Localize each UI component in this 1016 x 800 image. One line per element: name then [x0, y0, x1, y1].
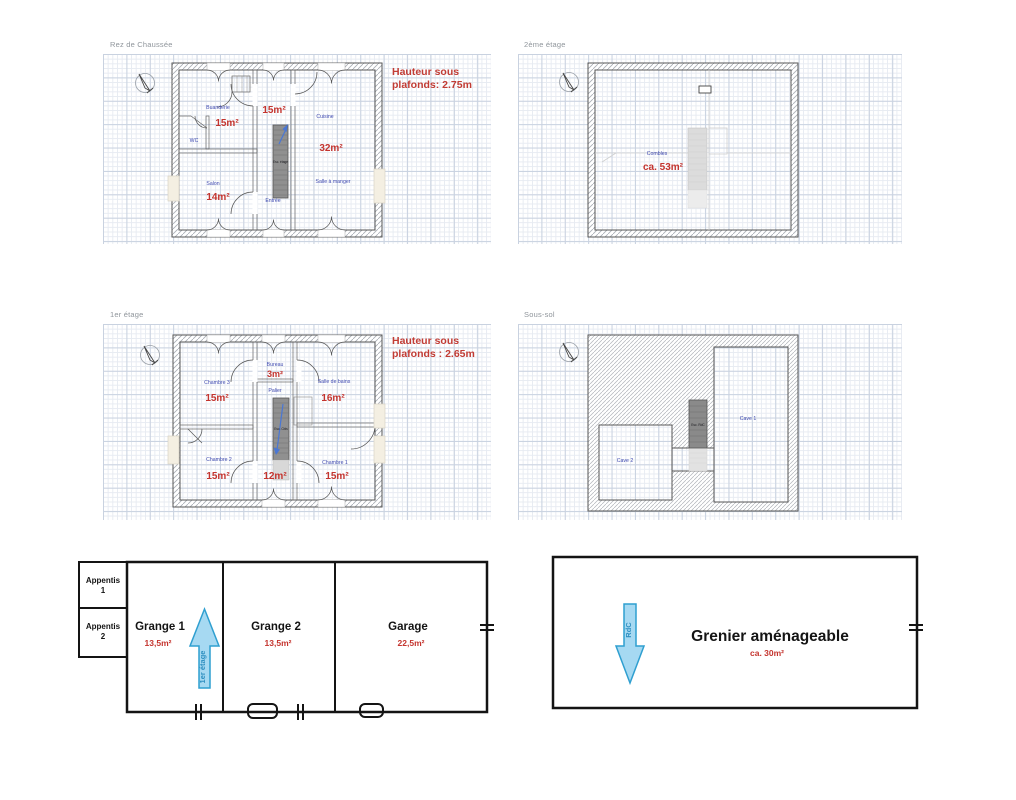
plan-title-etage1: 1er étage — [110, 310, 144, 319]
room-label-salle-de-bains: Salle de bains — [318, 379, 351, 385]
appentis1-box — [79, 562, 127, 608]
room-labels: Combles ca. 53m² — [643, 151, 684, 173]
staircase — [273, 398, 289, 480]
ceiling-note-etage1-line1: Hauteur sous — [392, 335, 475, 348]
ghost-structure — [595, 70, 791, 230]
north-compass-icon — [560, 73, 579, 93]
area-chambre3: 15m² — [205, 393, 229, 404]
room-label-cuisine: Cuisine — [316, 114, 333, 120]
arrow-label-rdc: RdC — [624, 622, 633, 638]
arrow-label-etage1: 1er étage — [198, 651, 207, 684]
door-symbol-2 — [360, 704, 383, 717]
appentis1-label-line2: 1 — [101, 586, 106, 595]
area-cuisine: 32m² — [319, 143, 343, 154]
area-combles: ca. 53m² — [643, 162, 684, 173]
ceiling-note-etage1-line2: plafonds : 2.65m — [392, 348, 475, 361]
stair-label-rdc: Esc. étage — [273, 160, 288, 164]
room-label-cave2: Cave 2 — [617, 458, 634, 464]
room-label-chambre3: Chambre 3 — [204, 380, 230, 386]
area-chambre2: 15m² — [206, 471, 230, 482]
room-label-palier: Palier — [268, 388, 282, 394]
room-label-combles: Combles — [647, 151, 668, 157]
area-salon: 14m² — [206, 192, 230, 203]
area-hall: 15m² — [262, 105, 286, 116]
room-label-bureau: Bureau — [267, 362, 284, 368]
grenier-plan: RdC Grenier aménageable ca. 30m² — [545, 550, 925, 715]
room-labels: Buanderie 15m² WC Salon 14m² 15m² Esc. é… — [190, 105, 351, 204]
main-building-box — [127, 562, 487, 712]
stairs-up-arrow: 1er étage — [190, 609, 219, 688]
appentis1-label-line1: Appentis — [86, 576, 121, 585]
grenier-label: Grenier aménageable — [691, 628, 849, 645]
room-label-chambre2: Chambre 2 — [206, 457, 232, 463]
ceiling-note-etage1: Hauteur sous plafonds : 2.65m — [392, 335, 475, 360]
room-label-chambre1: Chambre 1 — [322, 460, 348, 466]
plan-etage2: Combles ca. 53m² — [518, 54, 902, 244]
north-compass-icon — [560, 343, 579, 363]
area-buanderie: 15m² — [215, 118, 239, 129]
staircase — [689, 400, 707, 471]
plan-soussol: Esc. RdC Cave 1 Cave 2 — [518, 324, 902, 520]
grange2-area: 13,5m² — [265, 638, 292, 648]
room-label-cave1: Cave 1 — [740, 416, 757, 422]
area-salle-de-bains: 16m² — [321, 393, 345, 404]
ceiling-note-rdc-line2: plafonds: 2.75m — [392, 79, 472, 92]
partition-walls — [223, 562, 335, 712]
room-label-buanderie: Buanderie — [206, 105, 230, 111]
plan-title-soussol: Sous-sol — [524, 310, 555, 319]
stairs-down-arrow: RdC — [616, 604, 644, 683]
grenier-area: ca. 30m² — [750, 648, 784, 658]
grange1-label: Grange 1 — [135, 621, 185, 633]
chimney — [699, 86, 711, 93]
grange1-area: 13,5m² — [145, 638, 172, 648]
north-compass-icon — [136, 74, 155, 94]
floorplan-sheet: Rez de Chaussée 2ème étage 1er étage Sou… — [0, 0, 1016, 800]
appentis2-label-line2: 2 — [101, 632, 106, 641]
garage-label: Garage — [388, 621, 428, 633]
area-hall1: 12m² — [263, 471, 287, 482]
area-bureau: 3m² — [267, 369, 283, 379]
ceiling-note-rdc-line1: Hauteur sous — [392, 66, 472, 79]
garage-area: 22,5m² — [398, 638, 425, 648]
stair-label-soussol: Esc. RdC — [691, 423, 705, 427]
area-chambre1: 15m² — [325, 471, 349, 482]
ceiling-note-rdc: Hauteur sous plafonds: 2.75m — [392, 66, 472, 91]
room-label-salon: Salon — [206, 181, 219, 187]
annex-plan: 1er étage Appentis 1 Appentis 2 Grange 1… — [60, 552, 500, 722]
room-label-entree: Entrée — [265, 198, 280, 204]
room-label-wc: WC — [190, 138, 199, 144]
appentis2-label-line1: Appentis — [86, 622, 121, 631]
stair-label-etage1: Esc. Cbls — [274, 427, 288, 431]
plan-title-rdc: Rez de Chaussée — [110, 40, 173, 49]
room-label-salle-a-manger: Salle à manger — [316, 179, 351, 185]
grange2-label: Grange 2 — [251, 621, 301, 633]
north-compass-icon — [141, 346, 160, 366]
plan-title-etage2: 2ème étage — [524, 40, 566, 49]
